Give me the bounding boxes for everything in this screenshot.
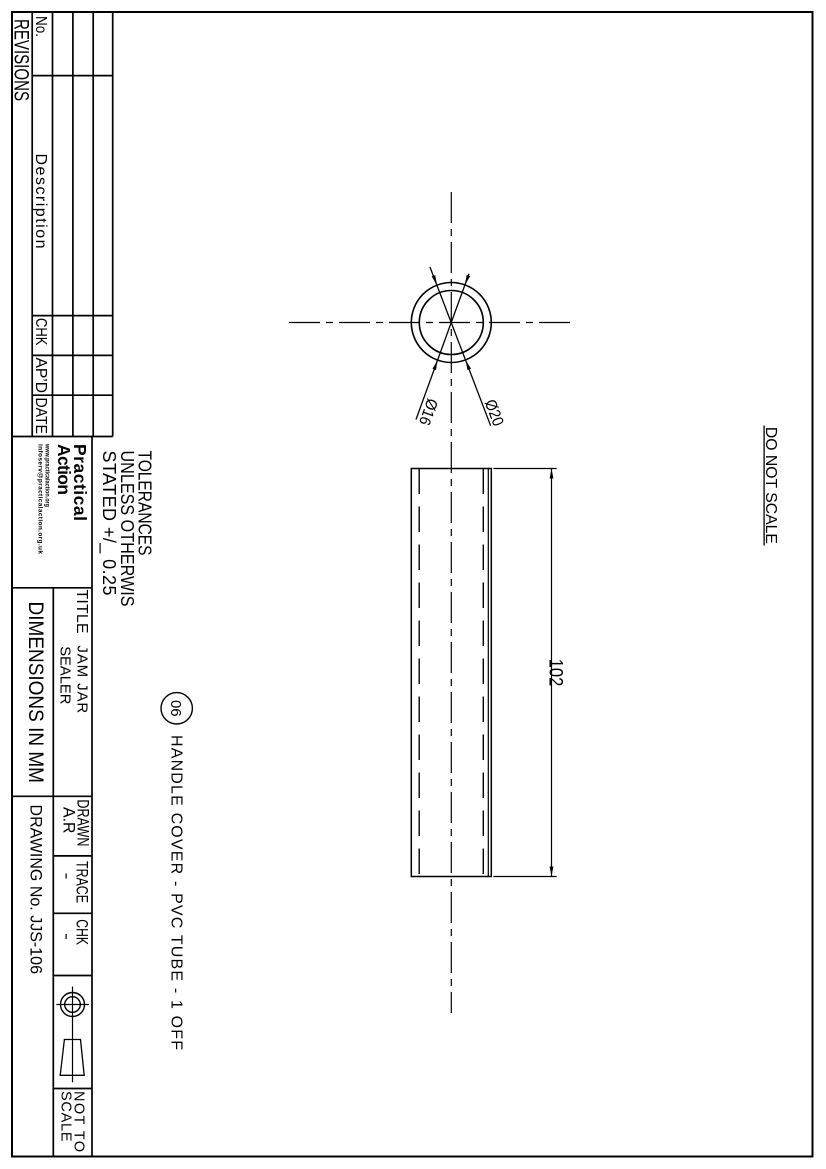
svg-text:SCALE: SCALE [57,1091,73,1142]
svg-text:-: - [58,873,75,880]
svg-text:SEALER: SEALER [56,646,73,704]
svg-text:Description: Description [32,154,49,249]
svg-text:TOLERANCES: TOLERANCES [135,451,155,556]
svg-text:AP’D: AP’D [32,358,49,394]
svg-text:infoserv@practicalaction.org.u: infoserv@practicalaction.org.uk [37,444,44,554]
svg-text:JAM JAR: JAM JAR [73,645,90,713]
svg-text:Ø20: Ø20 [481,397,507,428]
svg-text:TITLE: TITLE [73,590,90,634]
svg-text:06: 06 [167,700,184,717]
svg-text:A.R: A.R [60,807,78,834]
svg-text:No.: No. [32,16,49,37]
svg-text:DIMENSIONS IN MM: DIMENSIONS IN MM [24,602,47,784]
svg-text:102: 102 [545,659,566,687]
svg-text:REVISIONS: REVISIONS [10,19,33,101]
svg-text:DATE: DATE [32,398,49,435]
svg-text:TRACE: TRACE [73,861,91,903]
svg-text:CHK: CHK [73,919,91,945]
svg-text:HANDLE COVER - PVC TUBE - 1 OF: HANDLE COVER - PVC TUBE - 1 OFF [168,735,185,1050]
svg-text:www.practicalaction.org: www.practicalaction.org [44,443,51,507]
svg-text:STATED +/_ 0.25: STATED +/_ 0.25 [98,451,119,596]
svg-text:DRAWING No. JJS-106: DRAWING No. JJS-106 [27,805,46,975]
svg-text:Ø16: Ø16 [415,396,440,427]
svg-text:CHK: CHK [32,318,49,346]
svg-text:Action: Action [54,444,74,495]
svg-text:-: - [58,933,75,940]
svg-text:UNLESS OTHERWIS: UNLESS OTHERWIS [117,451,137,607]
